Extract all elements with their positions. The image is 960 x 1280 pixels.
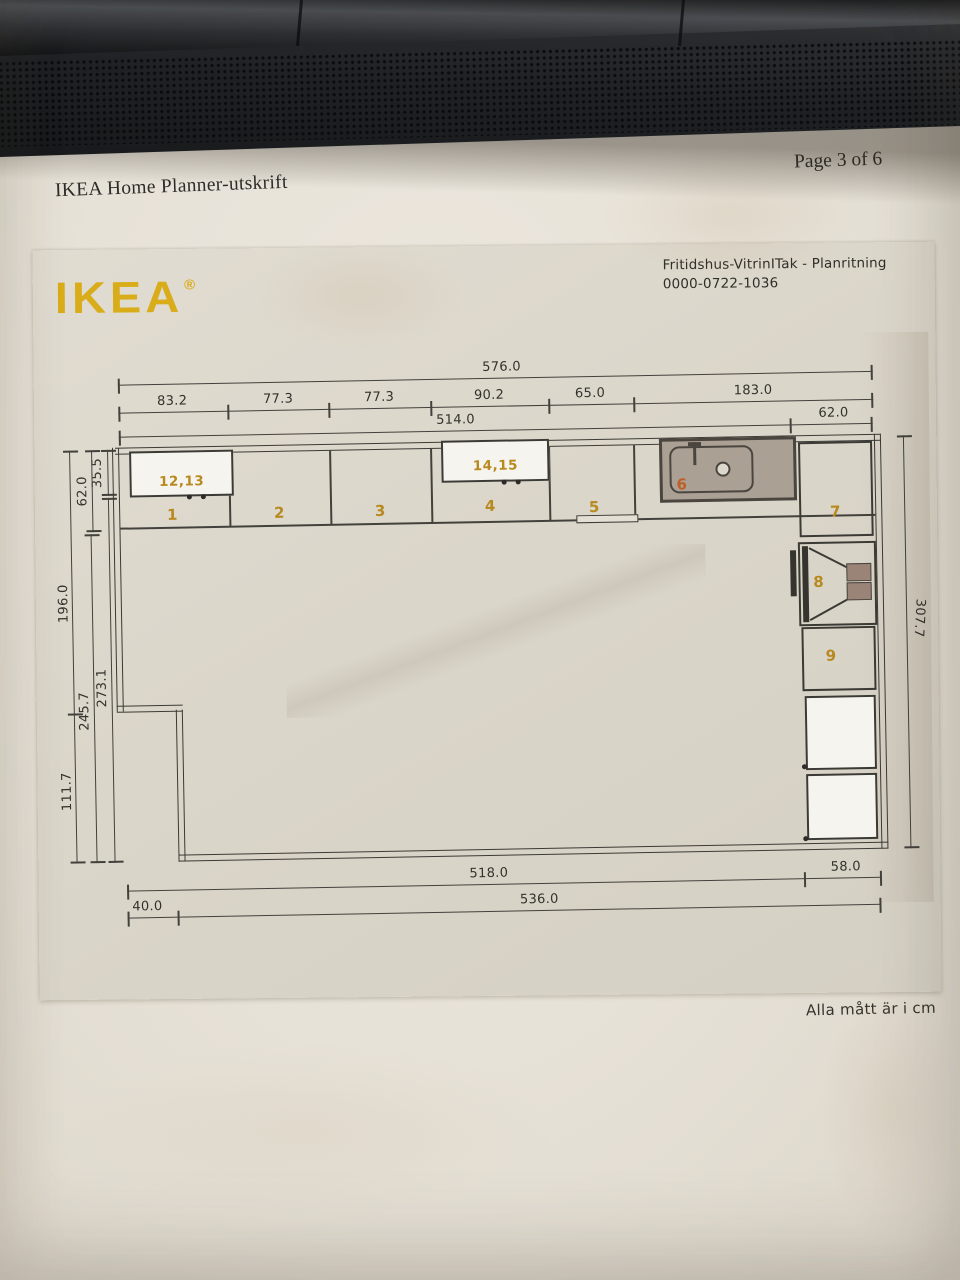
wall-mounted-panel — [790, 550, 797, 596]
paper-stain — [60, 1040, 560, 1220]
cabinet-9 — [801, 626, 876, 691]
dim-tick — [633, 397, 635, 412]
dim-tick — [127, 912, 129, 927]
base-cabinet-front-line — [120, 514, 875, 530]
dim-tick — [227, 405, 229, 420]
dim-tick — [119, 431, 121, 446]
dim-label-top-right: 62.0 — [818, 405, 848, 421]
dim-tick — [804, 872, 806, 887]
dim-label-bottom-inner: 536.0 — [520, 892, 559, 908]
dim-tick — [871, 417, 873, 432]
wall-bottom — [178, 842, 888, 862]
unit-label-6: 6 — [676, 475, 687, 493]
dim-tick — [118, 379, 120, 394]
dim-label-seg1: 83.2 — [157, 393, 187, 409]
dim-tick — [430, 401, 432, 416]
unit-label-7: 7 — [830, 502, 841, 520]
cabinet-divider — [430, 449, 433, 523]
dim-tick — [904, 846, 919, 848]
dim-tick — [118, 407, 120, 422]
wall-left-lower — [176, 710, 185, 862]
dim-tick — [109, 861, 124, 863]
paper-stain — [820, 980, 960, 1240]
dim-label-seg5: 65.0 — [575, 386, 605, 402]
dim-tick — [71, 861, 86, 863]
dim-tick — [879, 898, 881, 913]
dim-label-right-total: 307.7 — [911, 598, 928, 637]
dim-label-left-lower: 111.7 — [59, 772, 75, 811]
hinge-dot — [516, 479, 521, 484]
unit8-edge-line — [810, 598, 850, 621]
unit8-appliance-block — [847, 582, 872, 600]
dim-tick — [85, 534, 100, 536]
unit-label-5: 5 — [589, 498, 600, 516]
dim-tick — [328, 403, 330, 418]
hinge-dot — [502, 480, 507, 485]
unit8-side-panel — [802, 546, 809, 622]
cabinet-handle-detail — [576, 514, 638, 523]
dim-tick — [86, 530, 101, 532]
scanned-plan-sheet: IKEA® Fritidshus-VitrinITak - Planritnin… — [32, 242, 941, 1001]
base-cabinet-box — [805, 695, 877, 770]
dim-label-bottom-main: 518.0 — [469, 866, 508, 882]
wall-cabinet-label-14-15: 14,15 — [473, 457, 518, 474]
dim-line-wallcab-depth — [107, 450, 109, 496]
dim-tick — [871, 393, 873, 408]
unit-label-4: 4 — [485, 497, 496, 515]
dim-tick — [63, 450, 78, 452]
dim-label-basecab-depth: 62.0 — [75, 476, 91, 506]
dim-label-left-upper: 196.0 — [56, 584, 72, 623]
dim-tick — [871, 365, 873, 380]
hinge-dot — [802, 764, 807, 769]
dim-line-right-total — [903, 435, 912, 848]
unit-label-8: 8 — [813, 573, 824, 591]
wall-left-upper — [112, 448, 123, 712]
unit-label-1: 1 — [167, 506, 178, 524]
tall-cabinet-7 — [798, 441, 874, 537]
dim-label-seg6: 183.0 — [734, 383, 773, 399]
dim-tick — [127, 885, 129, 900]
hinge-dot — [803, 836, 808, 841]
dim-tick — [91, 861, 106, 863]
dim-tick — [68, 713, 83, 715]
dim-label-seg2: 77.3 — [263, 391, 293, 407]
faucet-stem — [693, 442, 696, 465]
dim-label-clear-wall: 273.1 — [95, 669, 111, 708]
dim-tick — [790, 418, 792, 433]
unit8-appliance-block — [846, 563, 871, 581]
hinge-dot — [201, 494, 206, 499]
dim-tick — [85, 450, 100, 452]
dim-label-bottom-right: 58.0 — [831, 859, 861, 875]
photo-of-printed-page: IKEA Home Planner-utskrift Page 3 of 6 A… — [0, 0, 960, 1280]
corner-unit-8 — [798, 541, 878, 626]
dim-tick — [548, 399, 550, 414]
unit-label-2: 2 — [274, 504, 285, 522]
dim-label-bottom-left: 40.0 — [132, 899, 162, 915]
dim-tick — [880, 871, 882, 886]
dim-line-bottom-main — [127, 878, 806, 891]
units-note: Alla mått är i cm — [806, 999, 936, 1020]
dim-label-clear-base: 245.7 — [77, 692, 93, 731]
unit8-edge-line — [808, 547, 848, 569]
hinge-dot — [187, 494, 192, 499]
dim-label-seg3: 77.3 — [364, 390, 394, 406]
dim-tick — [897, 435, 912, 437]
unit-label-9: 9 — [826, 647, 837, 665]
dim-label-seg4: 90.2 — [474, 388, 504, 404]
wall-step — [117, 705, 183, 713]
dim-label-inner-width: 514.0 — [436, 412, 475, 428]
dim-line-top-right — [792, 423, 873, 425]
dim-label-top-total: 576.0 — [482, 359, 521, 375]
dim-line-bottom-left — [128, 917, 180, 919]
cabinet-divider — [633, 445, 636, 519]
wall-cabinet-label-12-13: 12,13 — [159, 473, 204, 490]
cabinet-divider — [329, 451, 332, 525]
floor-plan: 576.0 83.2 77.3 77.3 90.2 65.0 183.0 514… — [38, 258, 932, 934]
dim-line-bottom-right — [806, 877, 882, 879]
dim-tick — [177, 911, 179, 926]
unit-label-3: 3 — [375, 502, 386, 520]
base-cabinet-box — [806, 773, 878, 840]
